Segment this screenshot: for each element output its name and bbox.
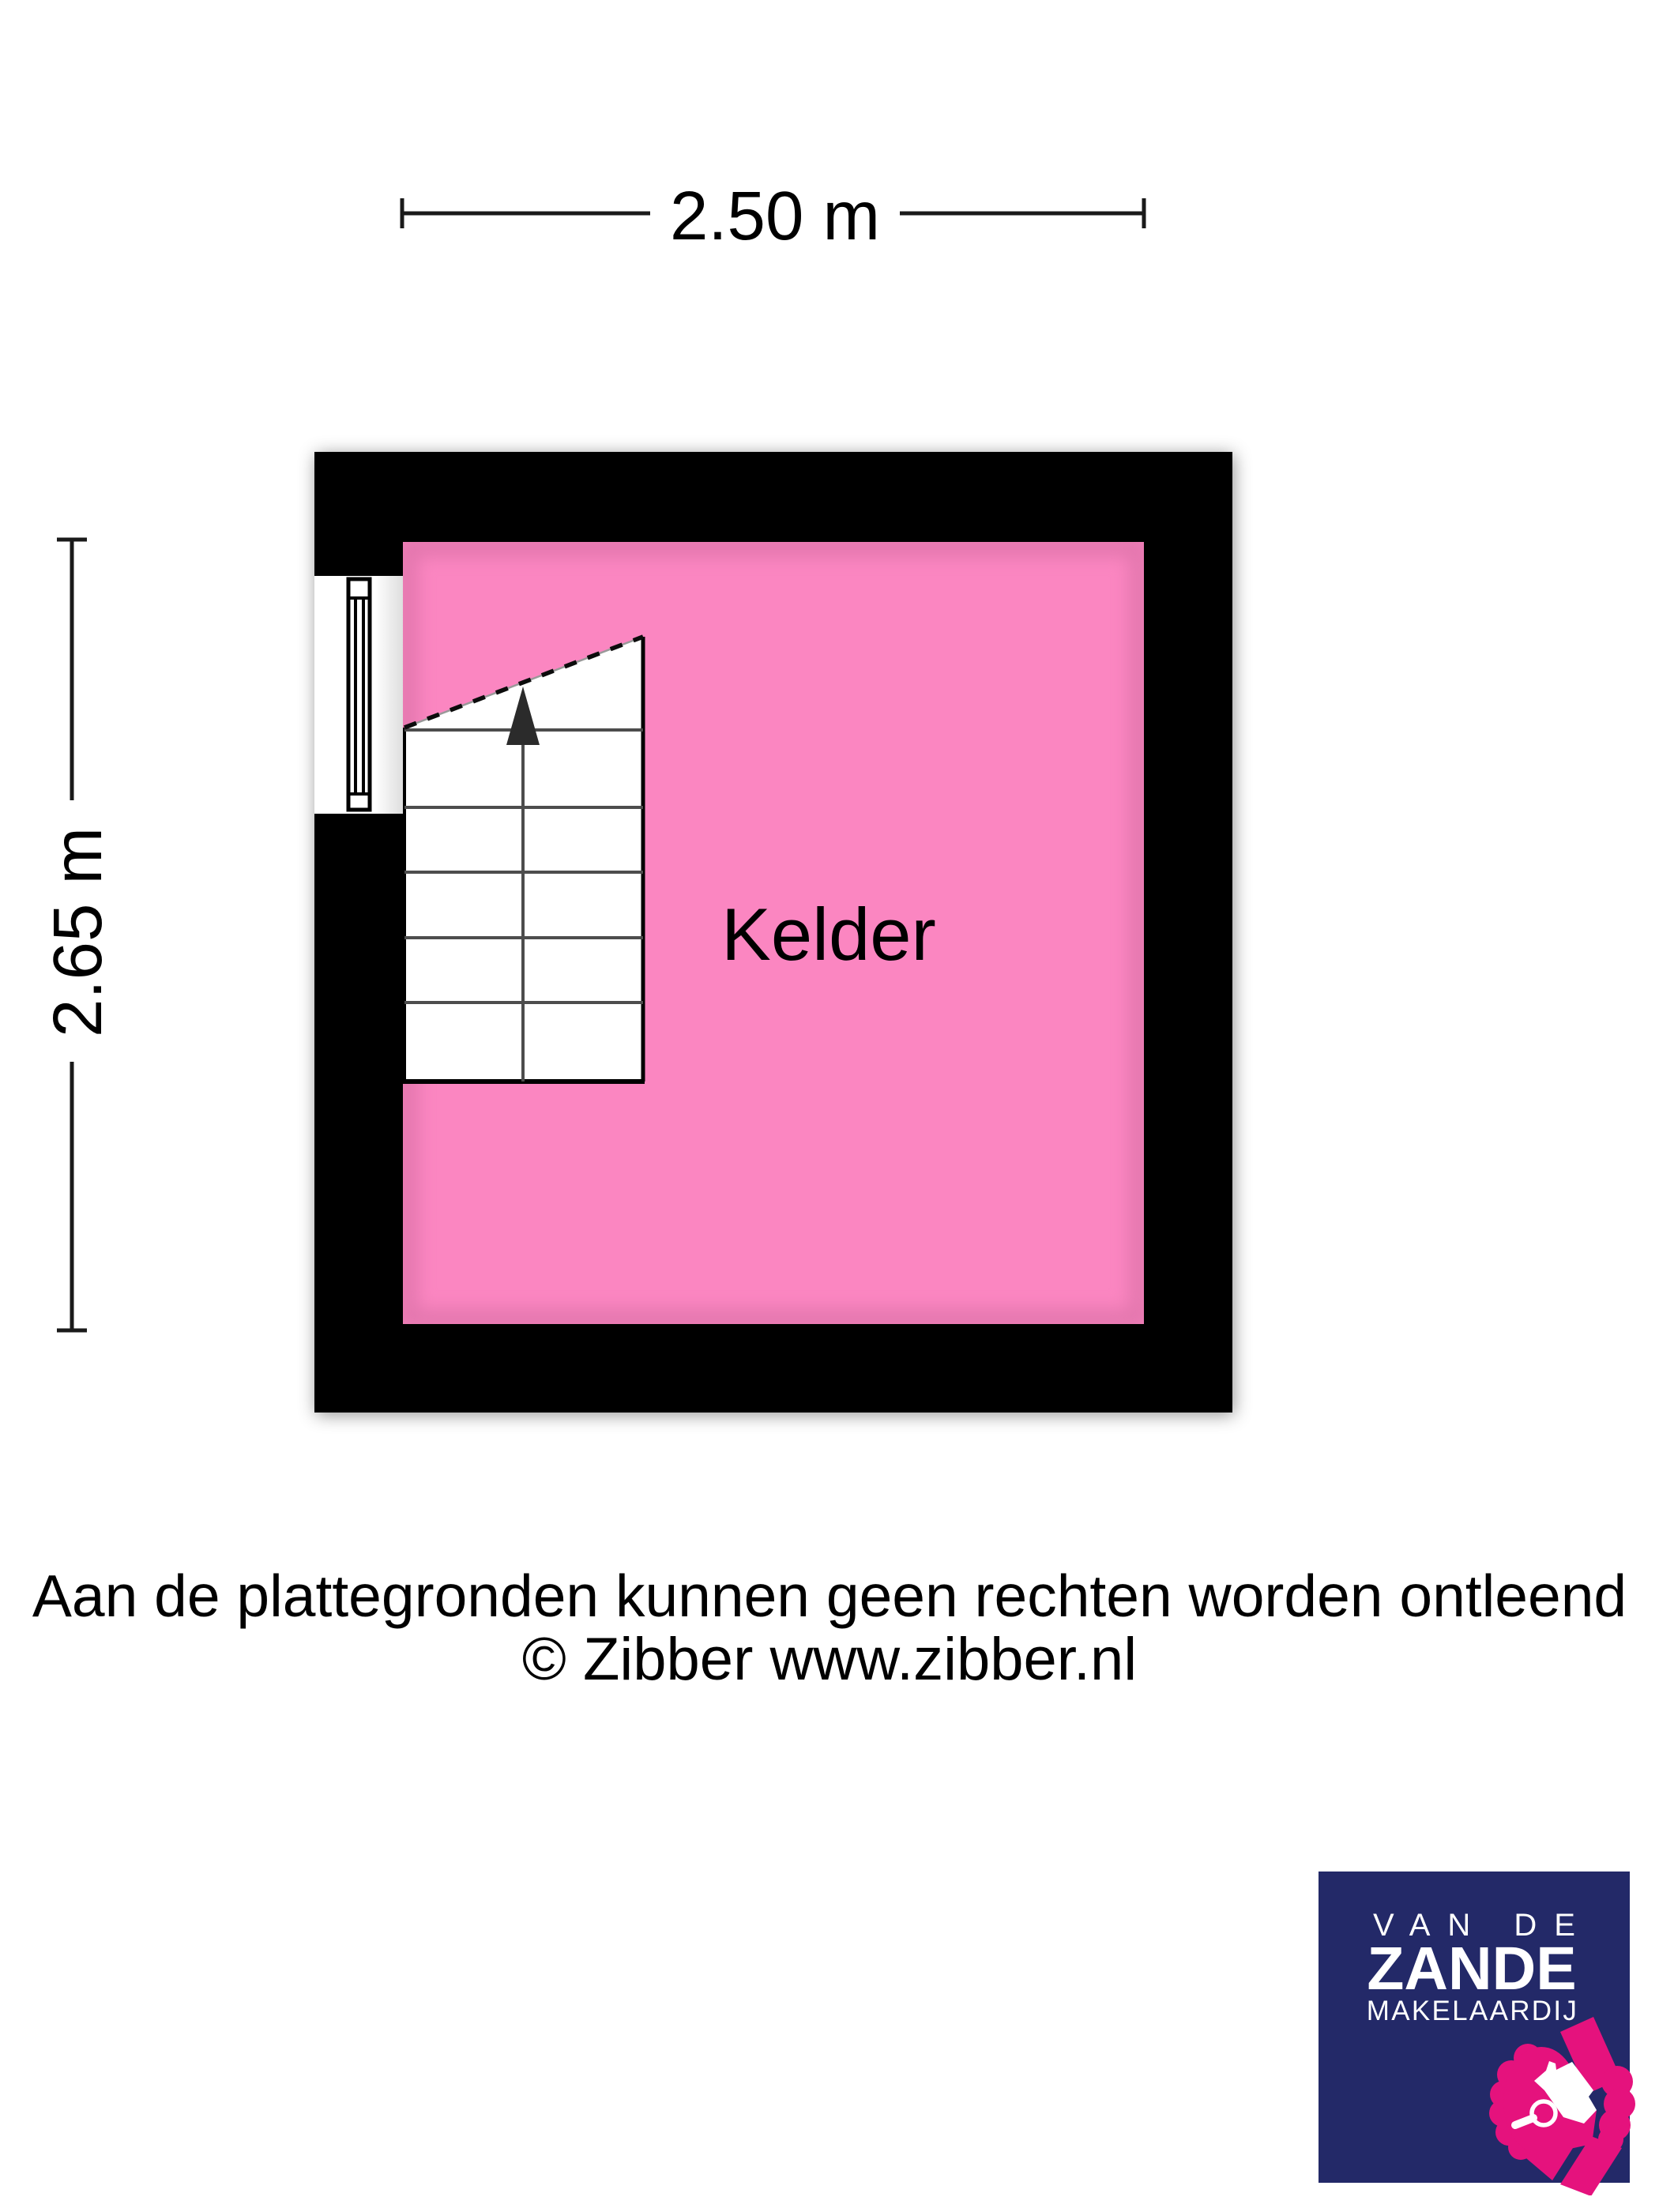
svg-text:2.65 m: 2.65 m [39,827,116,1037]
svg-text:MAKELAARDIJ: MAKELAARDIJ [1367,1996,1578,2026]
svg-text:ZANDE: ZANDE [1367,1935,1576,2003]
svg-text:Aan de plattegronden kunnen ge: Aan de plattegronden kunnen geen rechten… [32,1563,1627,1629]
svg-text:Kelder: Kelder [721,893,936,976]
svg-text:© Zibber www.zibber.nl: © Zibber www.zibber.nl [522,1626,1137,1693]
svg-text:2.50 m: 2.50 m [670,178,880,254]
